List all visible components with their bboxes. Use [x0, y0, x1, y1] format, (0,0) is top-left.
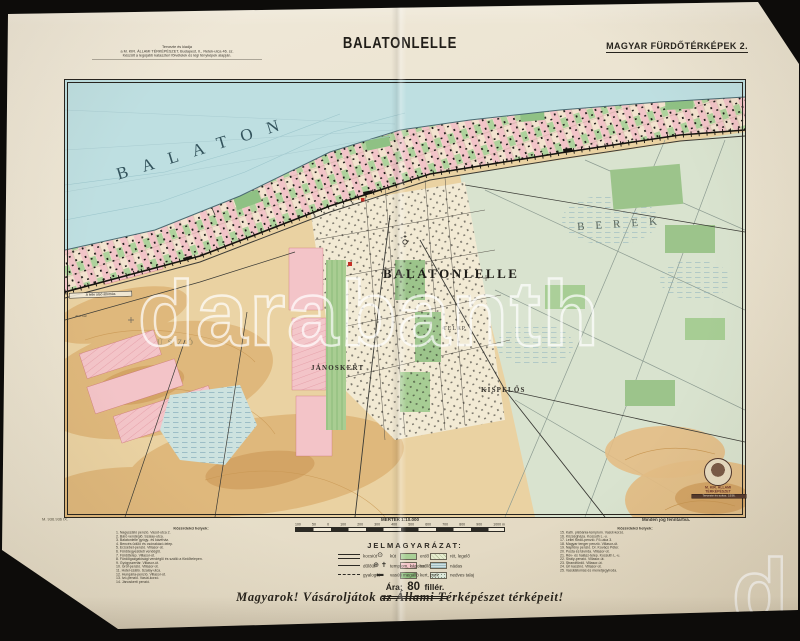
scale-tick: 700: [442, 523, 448, 527]
watermark-partial: h: [0, 556, 40, 641]
poi-header: Közérdekű helyek:: [116, 526, 266, 531]
publisher-emblem: M. KIR. ÁLLAMI TÉRKÉPÉSZET Tervezte és s…: [691, 458, 745, 503]
meadow-swatch: [430, 553, 447, 560]
imprint-line: Készült a legújabb kataszteri fölvételek…: [92, 54, 262, 58]
emblem-text: M. KIR. ÁLLAMI TÉRKÉPÉSZET: [691, 486, 745, 494]
publisher-imprint: Tervezte és kiadja a M. KIR. ÁLLAMI TÉRK…: [92, 45, 262, 59]
emblem-note: Tervezte és soksz. 1936.: [692, 494, 747, 499]
label-kispelos: KISPELŐS: [481, 386, 526, 394]
print-code: M. 936.936 IX.: [42, 517, 68, 522]
poi-item: 25. Vasútállomás és menetjegyiroda.: [560, 569, 710, 573]
legend-row: rét, legelő: [430, 553, 450, 559]
reeds-swatch: [430, 562, 447, 569]
photo-background: BALATONLELLE MAGYAR FÜRDŐTÉRKÉPEK 2. Ter…: [0, 0, 800, 641]
emblem-eagle-icon: [704, 458, 732, 486]
label-also-hat: Alsó hát: [75, 314, 87, 318]
poi-header: Közérdekű helyek:: [560, 526, 710, 531]
scale-label: MÉRTÉK 1:10.000: [348, 517, 453, 522]
poi-items: 1. Nagyszálló penzió. Vasút-utca 2.2. Bá…: [116, 531, 266, 584]
rights-notice: Minden jog fenntartva.: [642, 517, 752, 522]
slogan: Magyarok! Vásároljátok az Állami Térképé…: [0, 590, 800, 605]
label-telep: TELEP: [443, 326, 466, 332]
poi-list-left: Közérdekű helyek: 1. Nagyszálló penzió. …: [116, 526, 416, 641]
scale-tick: 600: [425, 523, 431, 527]
map-canvas: [65, 80, 745, 517]
label-town-balatonlelle: BALATONLELLE: [383, 266, 519, 282]
poi-item: 14. Jánoskerti penzió.: [116, 580, 266, 584]
series-title: MAGYAR FÜRDŐTÉRKÉPEK 2.: [606, 41, 748, 53]
scale-tick: 800: [459, 523, 465, 527]
legend-row: nádas: [430, 563, 450, 569]
poi-list-right: Közérdekű helyek: 15. Kath. plébánia-tem…: [560, 526, 800, 620]
scale-tick: 900: [476, 523, 482, 527]
map-sheet: BALATONLELLE MAGYAR FÜRDŐTÉRKÉPEK 2. Ter…: [0, 0, 800, 641]
scale-tick: 1000 m: [493, 523, 505, 527]
label-uszo: ÚSZÓ: [157, 338, 198, 347]
poi-items: 15. Kath. plébánia-templom. Vasút-korzó.…: [560, 531, 710, 573]
label-janoskert: JÁNOSKERT: [311, 364, 364, 372]
map-frame: BALATON BALATONLELLE BEREK JÁNOSKERT KIS…: [64, 79, 746, 518]
